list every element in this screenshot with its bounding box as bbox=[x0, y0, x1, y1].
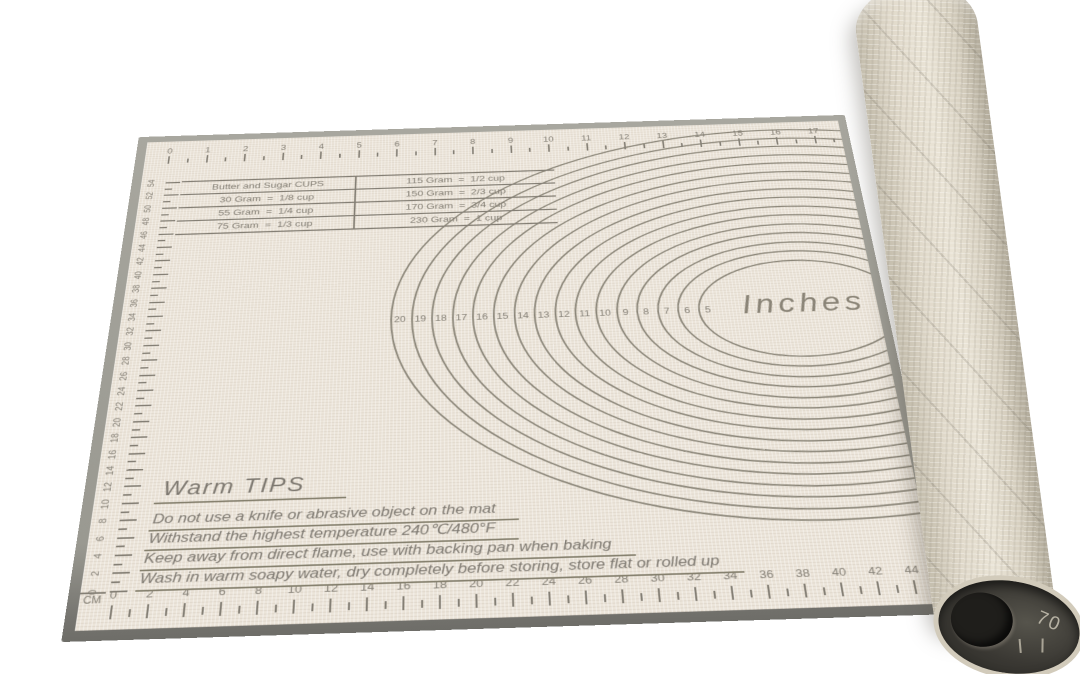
circle-number: 13 bbox=[535, 310, 553, 320]
inch-tick bbox=[244, 154, 246, 161]
cm-half-tick bbox=[530, 597, 532, 605]
roll-inner-hole bbox=[947, 588, 1017, 651]
mat-surface: Inches CM Warm TIPS Do not use a knife o… bbox=[75, 121, 942, 631]
cm-tick bbox=[256, 601, 259, 615]
cm-half-tick bbox=[127, 461, 136, 463]
circle-number: 15 bbox=[494, 311, 512, 321]
cm-half-tick bbox=[494, 598, 496, 606]
cm-tick bbox=[117, 537, 134, 539]
cm-half-tick bbox=[164, 608, 167, 616]
cm-tick-label: 30 bbox=[120, 340, 138, 353]
cm-tick bbox=[112, 572, 130, 574]
cm-tick bbox=[658, 588, 661, 602]
cm-tick-label: 26 bbox=[115, 369, 133, 382]
cm-half-tick bbox=[136, 397, 144, 399]
cm-half-tick bbox=[152, 281, 160, 283]
cm-tick-label: 38 bbox=[128, 283, 145, 295]
inch-tick-label: 5 bbox=[350, 141, 368, 149]
cm-tick bbox=[475, 594, 477, 608]
cm-tick-label: 10 bbox=[96, 497, 115, 512]
inch-tick-label: 16 bbox=[766, 128, 785, 136]
cm-tick bbox=[164, 194, 179, 196]
cm-tick bbox=[149, 301, 165, 303]
cm-tick-label: 36 bbox=[126, 297, 143, 309]
cm-tick-label: 8 bbox=[94, 514, 113, 529]
cm-tick-label: 54 bbox=[144, 178, 160, 189]
circle-number: 12 bbox=[555, 309, 573, 319]
circle-number: 9 bbox=[617, 307, 635, 317]
cm-tick bbox=[512, 593, 514, 607]
inch-tick bbox=[510, 146, 512, 153]
cm-tick-label: 40 bbox=[130, 269, 147, 281]
inch-tick-label: 4 bbox=[312, 142, 330, 150]
cm-tick bbox=[145, 330, 161, 332]
cm-tick bbox=[115, 554, 133, 556]
cm-half-tick bbox=[128, 609, 131, 617]
inch-tick-label: 11 bbox=[577, 134, 595, 142]
cm-half-tick bbox=[148, 309, 156, 311]
cm-tick bbox=[402, 596, 404, 610]
cm-tick bbox=[155, 260, 170, 262]
cm-tick bbox=[137, 389, 153, 391]
circle-number: 8 bbox=[637, 307, 655, 317]
circle-number: 18 bbox=[432, 313, 449, 323]
circle-number: 14 bbox=[514, 311, 532, 321]
cm-half-tick bbox=[138, 382, 146, 384]
inch-half-tick bbox=[491, 149, 493, 153]
cm-tick bbox=[141, 359, 157, 361]
cm-tick bbox=[366, 597, 368, 611]
cm-half-tick bbox=[238, 606, 241, 614]
circle-number: 6 bbox=[678, 305, 697, 315]
inch-tick-label: 2 bbox=[236, 145, 254, 153]
cm-half-tick bbox=[142, 352, 150, 354]
cm-half-tick bbox=[713, 591, 716, 599]
cm-tick-label: 4 bbox=[89, 548, 108, 563]
cm-half-tick bbox=[159, 227, 167, 228]
cm-tick bbox=[621, 589, 624, 603]
inch-half-tick bbox=[643, 144, 645, 148]
cm-half-tick bbox=[786, 589, 789, 597]
inch-half-tick bbox=[339, 154, 341, 158]
cm-half-tick bbox=[161, 214, 169, 215]
cm-half-tick bbox=[274, 605, 276, 613]
cm-tick-label: 44 bbox=[134, 242, 151, 254]
inch-tick-label: 7 bbox=[426, 139, 444, 147]
cm-tick bbox=[122, 502, 139, 504]
inch-half-tick bbox=[415, 151, 417, 155]
cm-tick bbox=[585, 591, 588, 605]
cm-half-tick bbox=[822, 587, 825, 595]
cm-tick bbox=[219, 602, 222, 616]
cm-half-tick bbox=[134, 413, 142, 415]
cm-tick-label: 22 bbox=[111, 400, 129, 414]
inch-tick bbox=[586, 143, 588, 150]
cm-tick bbox=[129, 452, 146, 454]
inch-half-tick bbox=[301, 155, 303, 159]
cm-tick bbox=[182, 603, 185, 617]
cm-tick-label: 42 bbox=[132, 256, 149, 268]
cm-tick-label: 46 bbox=[136, 229, 153, 241]
baking-mat: Inches CM Warm TIPS Do not use a knife o… bbox=[61, 115, 954, 642]
cm-half-tick bbox=[158, 240, 166, 241]
circle-number: 7 bbox=[657, 306, 675, 316]
inch-tick bbox=[358, 150, 360, 157]
inch-tick-label: 6 bbox=[388, 140, 406, 148]
roll-end-number: 70 bbox=[1033, 607, 1065, 637]
cm-half-tick bbox=[130, 445, 138, 447]
cm-tick bbox=[133, 420, 150, 422]
inch-tick bbox=[167, 156, 170, 163]
cm-tick-label: 34 bbox=[124, 311, 141, 324]
cm-half-tick bbox=[640, 593, 643, 601]
cm-half-tick bbox=[457, 599, 459, 607]
inch-tick bbox=[206, 155, 208, 162]
inch-half-tick bbox=[224, 157, 226, 161]
roll-end-tick bbox=[1041, 638, 1043, 652]
cm-half-tick bbox=[347, 602, 349, 610]
cm-half-tick bbox=[125, 477, 134, 479]
inch-tick bbox=[320, 152, 322, 159]
cm-half-tick bbox=[201, 607, 204, 615]
cm-half-tick bbox=[165, 188, 172, 189]
inch-tick-label: 12 bbox=[615, 133, 633, 141]
inch-tick bbox=[396, 149, 398, 156]
cm-half-tick bbox=[603, 594, 606, 602]
inch-tick-label: 17 bbox=[804, 127, 823, 135]
cm-tick-label: 24 bbox=[113, 384, 131, 397]
cm-half-tick bbox=[121, 511, 130, 513]
cm-tick bbox=[803, 584, 807, 598]
inch-tick bbox=[548, 144, 550, 151]
cm-tick-label: 0 bbox=[100, 588, 127, 602]
cm-half-tick bbox=[421, 600, 423, 608]
cm-tick bbox=[694, 587, 698, 601]
inch-half-tick bbox=[681, 143, 683, 147]
cm-half-tick bbox=[156, 253, 164, 254]
circle-number: 19 bbox=[412, 314, 429, 324]
cm-tick bbox=[159, 233, 174, 235]
cm-half-tick bbox=[140, 367, 148, 369]
cm-half-tick bbox=[150, 295, 158, 297]
rolled-mat-edge: 70 bbox=[836, 0, 1080, 674]
cm-tick-label: 14 bbox=[101, 463, 120, 477]
cm-tick-label: 2 bbox=[86, 566, 106, 582]
cm-half-tick bbox=[567, 595, 569, 603]
cm-tick bbox=[146, 604, 150, 618]
cm-half-tick bbox=[132, 429, 140, 431]
inch-tick bbox=[282, 153, 284, 160]
cm-tick bbox=[151, 287, 167, 289]
cm-tick-label: 38 bbox=[789, 566, 817, 580]
cm-half-tick bbox=[384, 601, 386, 609]
cm-half-tick bbox=[123, 494, 132, 496]
cm-tick bbox=[329, 599, 332, 613]
cm-tick bbox=[143, 344, 159, 346]
cm-tick bbox=[126, 469, 143, 471]
cm-tick-label: 50 bbox=[140, 203, 156, 214]
cm-half-tick bbox=[163, 201, 171, 202]
circle-number: 11 bbox=[576, 309, 594, 319]
cm-half-tick bbox=[311, 603, 313, 611]
cm-tick-label: 16 bbox=[104, 447, 123, 461]
cm-tick bbox=[162, 207, 177, 209]
circle-number: 20 bbox=[391, 314, 409, 324]
cm-half-tick bbox=[116, 546, 125, 548]
inch-tick-label: 3 bbox=[274, 143, 292, 151]
inch-tick-label: 8 bbox=[464, 137, 482, 145]
circle-number: 16 bbox=[473, 312, 491, 322]
cm-tick bbox=[160, 220, 175, 222]
cm-tick-label: 36 bbox=[753, 567, 780, 581]
inch-tick bbox=[472, 147, 474, 154]
cm-tick-label: 18 bbox=[106, 431, 124, 445]
inch-tick-label: 10 bbox=[539, 135, 557, 143]
inch-half-tick bbox=[186, 159, 188, 163]
warm-tips-title: Warm TIPS bbox=[154, 471, 347, 504]
cm-tick bbox=[153, 274, 168, 276]
inch-tick-label: 13 bbox=[653, 132, 671, 140]
cm-half-tick bbox=[154, 267, 162, 269]
cm-half-tick bbox=[118, 528, 127, 530]
cm-half-tick bbox=[749, 590, 752, 598]
product-photo: Inches CM Warm TIPS Do not use a knife o… bbox=[0, 0, 1080, 674]
cm-tick bbox=[135, 405, 151, 407]
cm-tick bbox=[548, 592, 551, 606]
inch-half-tick bbox=[453, 150, 455, 154]
inch-tick bbox=[624, 142, 626, 149]
cm-tick-label: 6 bbox=[91, 531, 110, 546]
roll-end-tick bbox=[1019, 639, 1022, 653]
cm-tick bbox=[119, 519, 136, 521]
cm-tick bbox=[166, 182, 181, 184]
cm-half-tick bbox=[113, 563, 122, 565]
cm-tick bbox=[147, 315, 163, 317]
roll-mesh-surface bbox=[851, 0, 1059, 648]
inch-half-tick bbox=[262, 156, 264, 160]
cm-tick-label: 52 bbox=[142, 190, 158, 201]
cm-half-tick bbox=[111, 581, 120, 583]
cm-tick-label: 20 bbox=[108, 415, 126, 429]
circle-number: 5 bbox=[698, 305, 717, 315]
cm-tick bbox=[157, 246, 172, 248]
inch-tick-label: 15 bbox=[728, 129, 747, 137]
cm-tick bbox=[139, 374, 155, 376]
inch-tick-label: 0 bbox=[161, 147, 180, 155]
cm-tick-label: 48 bbox=[138, 216, 154, 227]
cm-tick bbox=[292, 600, 295, 614]
cm-half-tick bbox=[676, 592, 679, 600]
cm-half-tick bbox=[144, 337, 152, 339]
circle-number: 17 bbox=[453, 313, 471, 323]
inch-tick bbox=[434, 148, 436, 155]
circle-number: 10 bbox=[596, 308, 614, 318]
inch-half-tick bbox=[377, 153, 379, 157]
cm-tick-label: 32 bbox=[122, 325, 139, 338]
inch-tick-label: 9 bbox=[502, 136, 520, 144]
cm-tick bbox=[767, 585, 771, 599]
cm-tick bbox=[730, 586, 734, 600]
inch-half-tick bbox=[567, 147, 569, 151]
inch-tick-label: 1 bbox=[199, 146, 217, 154]
cm-tick bbox=[109, 605, 113, 619]
inch-half-tick bbox=[605, 145, 607, 149]
cm-tick bbox=[131, 436, 148, 438]
cm-tick-label: 12 bbox=[99, 480, 118, 495]
inch-tick-label: 14 bbox=[690, 130, 709, 138]
cm-half-tick bbox=[146, 323, 154, 325]
cm-tick bbox=[124, 485, 141, 487]
inch-half-tick bbox=[529, 148, 531, 152]
cm-tick bbox=[439, 595, 441, 609]
cm-tick-label: 28 bbox=[118, 354, 136, 367]
